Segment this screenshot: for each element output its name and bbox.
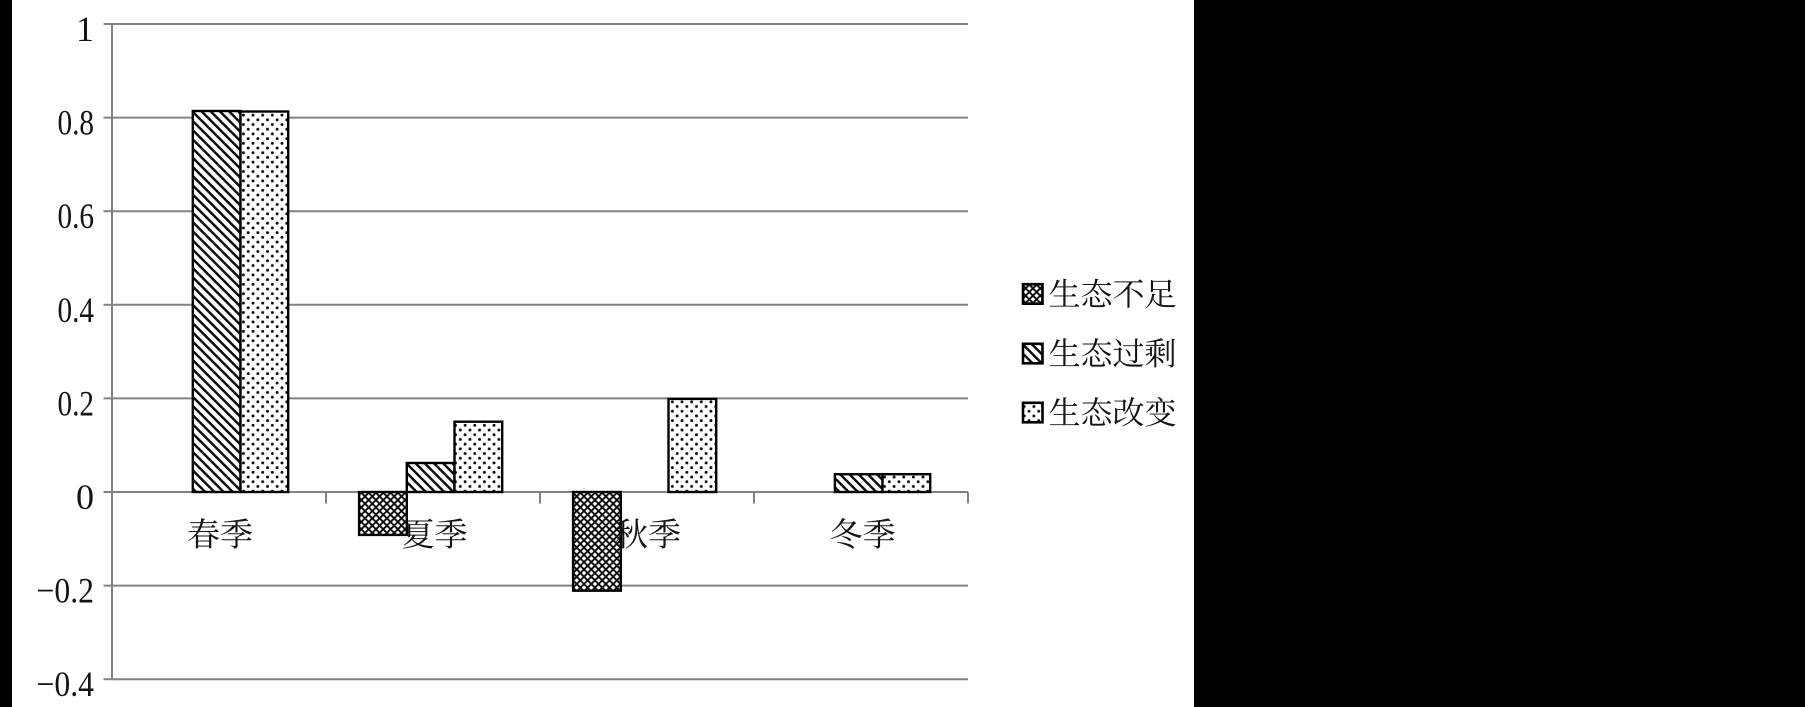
svg-text:0.2: 0.2: [58, 383, 95, 423]
svg-text:0: 0: [76, 477, 94, 517]
svg-text:−0.2: −0.2: [37, 571, 95, 611]
svg-text:1: 1: [76, 9, 94, 49]
svg-text:0.6: 0.6: [58, 196, 95, 236]
svg-text:0.8: 0.8: [58, 103, 95, 143]
svg-text:−0.4: −0.4: [37, 664, 95, 704]
svg-text:0.4: 0.4: [58, 290, 95, 330]
